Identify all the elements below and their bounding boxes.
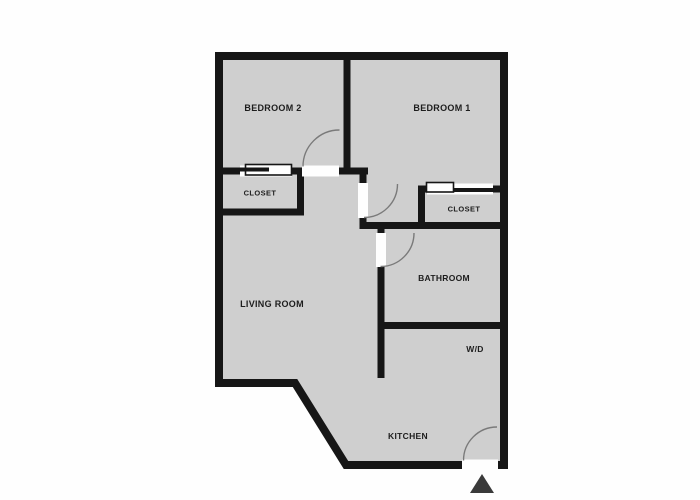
entry-door-opening	[462, 460, 498, 472]
closet1-bypass-panel	[427, 183, 454, 193]
room-label-bedroom-1: BEDROOM 1	[413, 103, 470, 113]
room-label-kitchen: KITCHEN	[388, 431, 428, 441]
entrance-marker-icon	[470, 474, 494, 493]
wall-closet1-west	[418, 186, 425, 229]
room-label-closet-2: CLOSET	[244, 189, 277, 198]
bedroom2-door-opening	[302, 166, 339, 177]
closet1-bypass-bar	[449, 188, 493, 192]
bedroom1-door-opening	[358, 183, 368, 218]
room-label-wd: W/D	[466, 344, 483, 354]
room-label-living-room: LIVING ROOM	[240, 299, 304, 309]
floor-plan-drawing	[0, 0, 700, 500]
floor-plan: BEDROOM 2 BEDROOM 1 CLOSET CLOSET LIVING…	[0, 0, 700, 500]
closet2-bypass-bar	[240, 168, 269, 172]
wall-closet2-south	[215, 209, 304, 216]
bathroom-door-opening	[376, 233, 386, 267]
room-label-bathroom: BATHROOM	[418, 273, 470, 283]
closet2-bypass-door-icon	[240, 165, 292, 176]
wall-bedroom-divider	[344, 52, 351, 174]
wall-bathroom-south	[378, 322, 509, 329]
floor-outline	[219, 56, 504, 465]
room-label-bedroom-2: BEDROOM 2	[244, 103, 301, 113]
room-label-closet-1: CLOSET	[448, 205, 481, 214]
